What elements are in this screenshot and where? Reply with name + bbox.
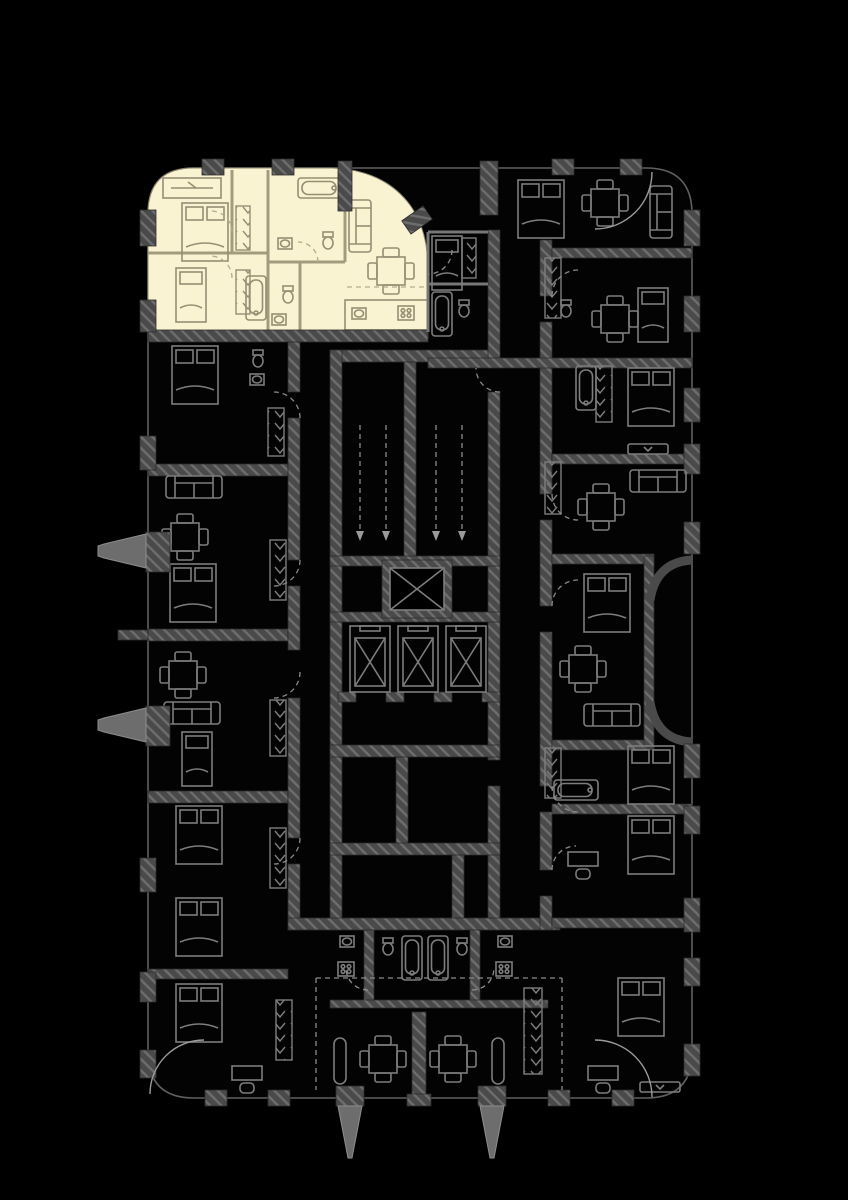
floor-plan-canvas xyxy=(0,0,848,1200)
left-column-icon xyxy=(98,708,146,742)
closet-rail-icon xyxy=(236,206,250,250)
closet-rail-icon xyxy=(236,270,250,314)
highlighted-apartment[interactable] xyxy=(148,168,428,338)
floor-plan-svg xyxy=(0,0,848,1200)
bottom-column-icon xyxy=(480,1106,504,1158)
left-column-icon xyxy=(98,534,146,568)
shaft-cross-icon xyxy=(382,560,452,618)
bottom-column-icon xyxy=(338,1106,362,1158)
